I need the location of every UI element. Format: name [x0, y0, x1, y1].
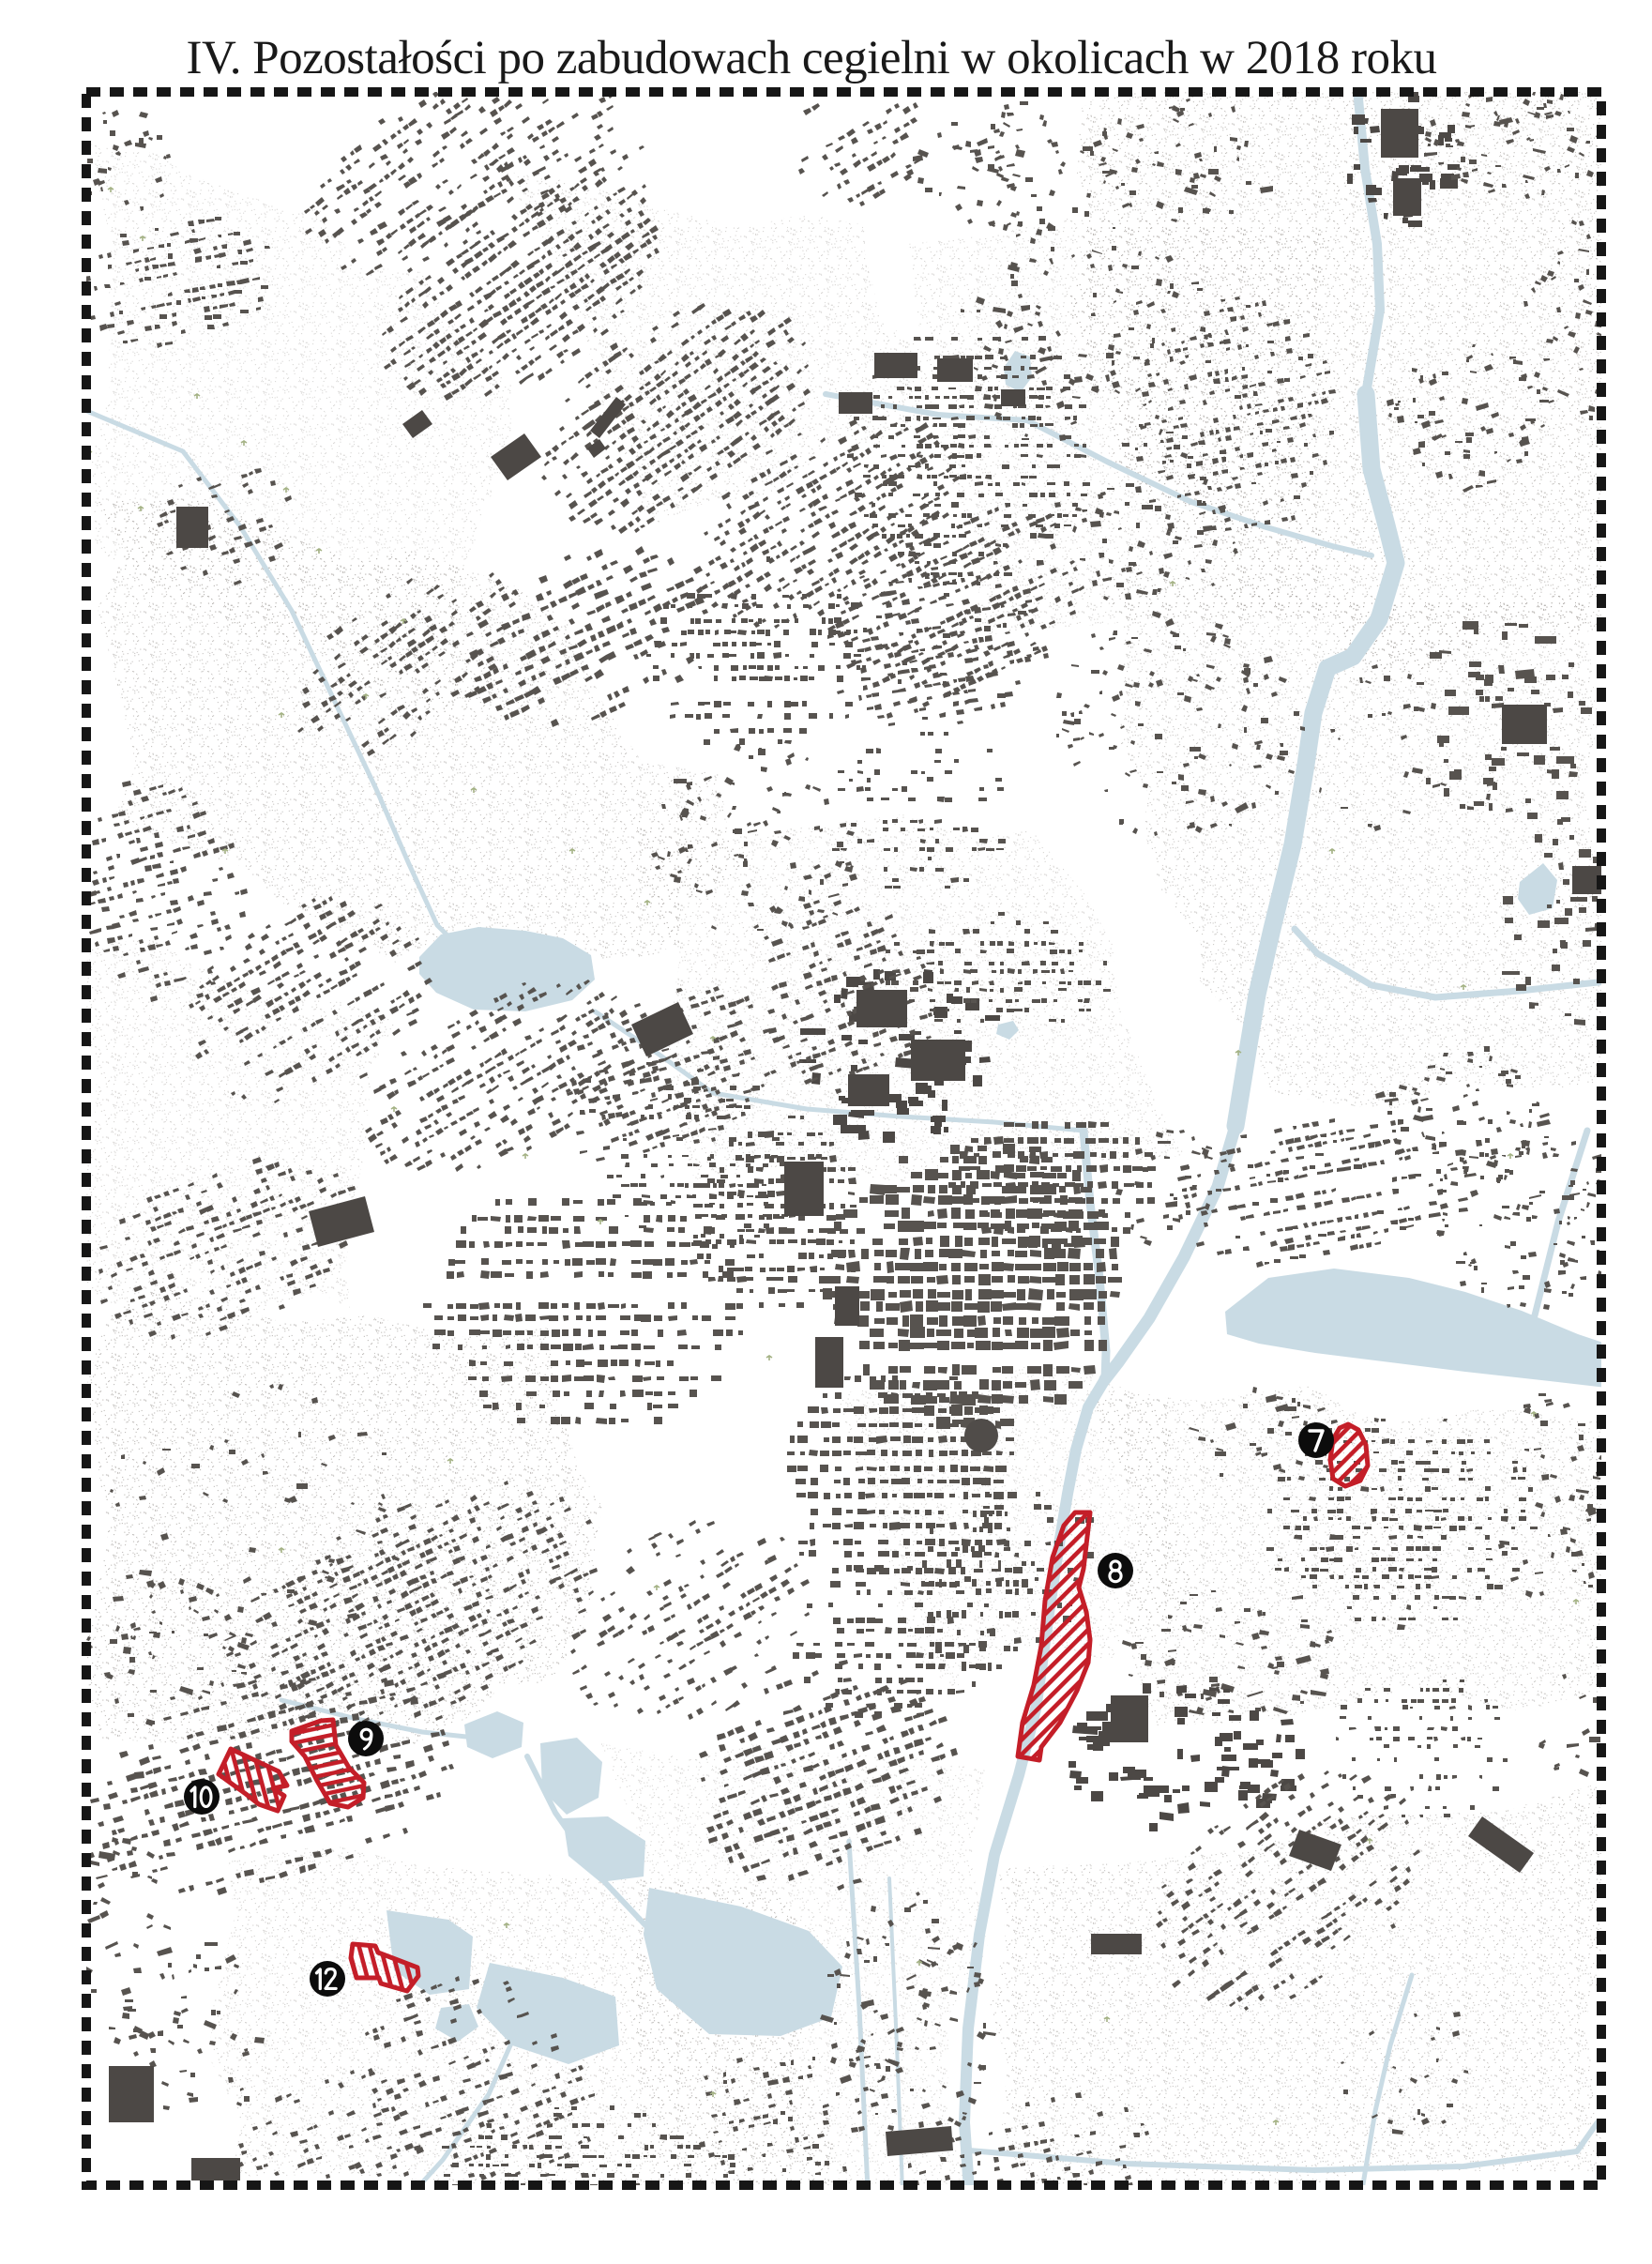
- svg-text:IV. Pozostałości po zabudowach: IV. Pozostałości po zabudowach cegielni …: [187, 32, 1437, 84]
